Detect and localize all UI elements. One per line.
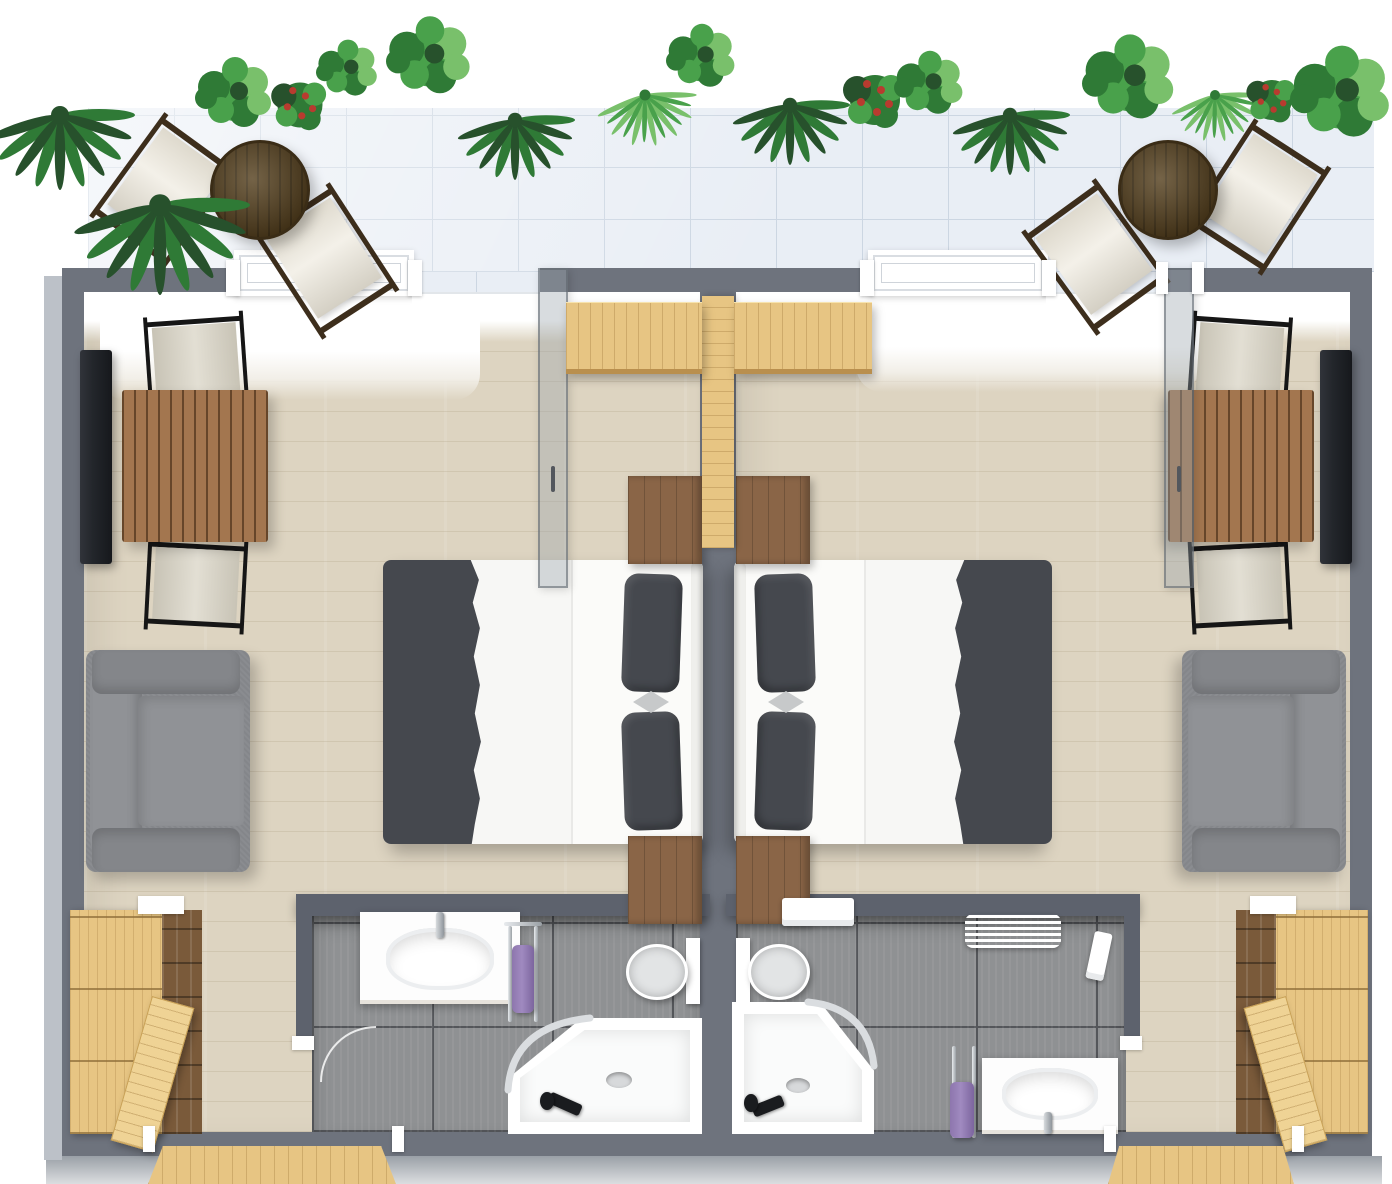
- wall-jamb: [1042, 260, 1056, 296]
- wall-jamb: [1156, 262, 1168, 294]
- right-sliding-glass-door: [1164, 268, 1194, 588]
- wall-jamb: [1120, 1036, 1142, 1050]
- wall-jamb: [1292, 1126, 1304, 1152]
- shower-head-knob: [744, 1094, 758, 1112]
- right-toilet: [748, 944, 810, 1000]
- wall-jamb: [1104, 1126, 1116, 1152]
- generated-items-layer: [0, 0, 1392, 1184]
- left-sliding-glass-door: [538, 268, 568, 588]
- wall-jamb: [860, 260, 874, 296]
- towel-radiator: [965, 914, 1061, 948]
- glass-door-handle: [551, 466, 555, 492]
- right-entry-threshold: [1108, 1146, 1294, 1184]
- right-shower-glass-rail: [802, 996, 892, 1076]
- left-wooden-sliding-door: [566, 302, 702, 374]
- wall-jamb: [292, 1036, 314, 1050]
- wall-jamb: [138, 896, 184, 914]
- left-entry-threshold: [148, 1146, 396, 1184]
- right-bathroom-shelf: [782, 898, 854, 926]
- right-bathroom-side-wall: [1124, 894, 1140, 1036]
- wall-jamb: [1250, 896, 1296, 914]
- left-shower-glass-rail: [504, 1012, 614, 1102]
- balcony-round-table: [1118, 140, 1218, 240]
- purple-towel: [512, 945, 534, 1013]
- bed-nightstand: [628, 836, 702, 924]
- glass-door-handle: [1177, 466, 1181, 492]
- right-sink-faucet: [1044, 1112, 1052, 1134]
- purple-towel: [950, 1082, 974, 1138]
- wall-jamb: [226, 260, 240, 296]
- left-toilet: [626, 944, 688, 1000]
- bed-nightstand: [628, 476, 702, 564]
- wall-jamb: [1192, 262, 1204, 294]
- central-wall-wood-cladding: [702, 296, 734, 548]
- left-bathroom-side-wall: [296, 894, 312, 1036]
- towel-stand-pole: [534, 926, 538, 1022]
- deck-chair-canvas: [108, 127, 225, 248]
- right-wooden-sliding-door: [734, 302, 872, 374]
- left-sink-faucet: [436, 912, 444, 938]
- shower-head-knob: [540, 1092, 554, 1110]
- deck-chair-canvas: [1202, 133, 1317, 254]
- floorplan-render: [0, 0, 1392, 1184]
- balcony-round-table: [210, 140, 310, 240]
- wall-jamb: [408, 260, 422, 296]
- left-toilet-tank: [686, 938, 700, 1004]
- shower-drain: [786, 1078, 810, 1093]
- wall-jamb: [143, 1126, 155, 1152]
- bed-nightstand: [736, 476, 810, 564]
- towel-stand-bar: [504, 922, 542, 926]
- wall-jamb: [392, 1126, 404, 1152]
